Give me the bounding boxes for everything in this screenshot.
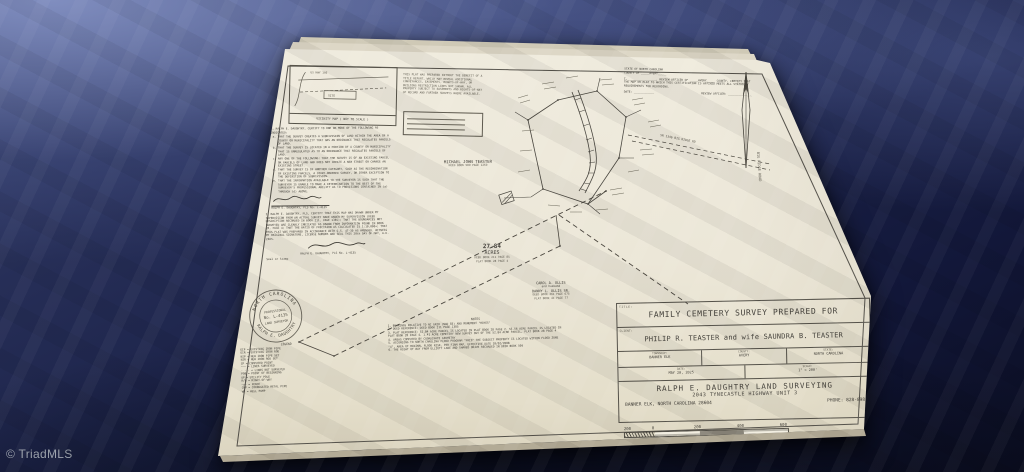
state-cell: STATE: NORTH CAROLINA — [787, 347, 871, 364]
firm-phone: PHONE: 828-898 — [827, 398, 865, 404]
legend: LEGEND EIP = EXISTING IRON PIPE EIR = EX… — [240, 341, 334, 394]
title-tag: TITLE: — [619, 305, 633, 309]
owner-label-ollis: CAROL A. OLLIS and husband DANNY L. OLLI… — [503, 280, 599, 301]
certification-body: I, RALPH E. DAUGHTRY, PLS, CERTIFY THAT … — [266, 211, 390, 241]
scale-tick: 0 — [652, 425, 655, 430]
township-cell: TOWNSHIP: BANNER ELK — [618, 350, 703, 367]
vicinity-roads: SITE US HWY 19E — [290, 66, 395, 114]
survey-plat-document: SR 1346 BIG RIDGE RD BIG RIDGE ROAD SITE — [0, 0, 1024, 472]
scale-tick: 200 — [694, 424, 701, 429]
date-cell: DATE: MAY 20, 2025 — [618, 365, 745, 381]
vicinity-map: SITE US HWY 19E VICINITY MAP ( NOT TO SC… — [288, 65, 397, 126]
scale-tick: 400 — [737, 423, 744, 428]
blank-line — [407, 124, 465, 130]
disclaimer-note: THIS PLAT WAS PREPARED WITHOUT THE BENEF… — [403, 73, 487, 96]
survey-title: FAMILY CEMETERY SURVEY PREPARED FOR — [648, 306, 838, 319]
review-officer-block: STATE OF NORTH CAROLINA COUNTY OF _____A… — [624, 68, 753, 97]
photo-background: SR 1346 BIG RIDGE RD BIG RIDGE ROAD SITE — [0, 0, 1024, 472]
scale-tick: 600 — [780, 422, 787, 427]
vicinity-map-label: VICINITY MAP ( NOT TO SCALE ) — [289, 113, 395, 125]
road-label-vertical: BIG RIDGE ROAD — [756, 152, 762, 182]
client-tag: CLIENT: — [620, 329, 633, 333]
surveyor-signature — [271, 194, 323, 204]
firm-city: BANNER ELK, NORTH CAROLINA 28604 — [625, 401, 712, 408]
scale-bar-segment — [655, 431, 700, 436]
vicinity-site-label: SITE — [328, 94, 336, 98]
review-body: I, ________________, REVIEW OFFICER OF _… — [624, 77, 752, 90]
survey-drawing-svg: SR 1346 BIG RIDGE RD BIG RIDGE ROAD — [0, 0, 1024, 472]
acreage-label: 27.84 ACRES DEED BOOK 211 PAGE 85 PLAT B… — [452, 242, 532, 263]
certification-item: THAT THE INFORMATION AVAILABLE TO THE SU… — [278, 178, 391, 193]
certification-signature: RALPH E. DAUGHTRY, PLS No. L-4135 — [300, 250, 390, 255]
scale-tick: 200 — [624, 426, 631, 431]
state-value: NORTH CAROLINA — [787, 351, 870, 357]
firm-row: RALPH E. DAUGHTRY LAND SURVEYING 2043 TY… — [619, 377, 872, 426]
township-value: BANNER ELK — [618, 355, 701, 361]
triadmls-watermark: © TriadMLS — [6, 447, 73, 461]
title-block: TITLE: FAMILY CEMETERY SURVEY PREPARED F… — [616, 298, 872, 423]
plat-sheet: SR 1346 BIG RIDGE RD BIG RIDGE ROAD SITE — [0, 0, 1024, 472]
scale-cell: SCALE: 1" = 200' — [745, 363, 871, 379]
client-name: PHILIP R. TEASTER and wife SAUNDRA B. TE… — [644, 331, 843, 343]
surveyor-info-box — [403, 111, 483, 137]
surveyor-signature — [306, 239, 366, 250]
certification-statement: I, RALPH E. DAUGHTRY, PLS, CERTIFY THAT … — [266, 211, 391, 262]
owner-label-michael-teaster: MICHAEL JOHN TEASTER DEED BOOK 509 PAGE … — [419, 159, 517, 168]
county-value: AVERY — [702, 353, 785, 359]
county-cell: COUNTY: AVERY — [702, 348, 787, 365]
certification-list: I, RALPH E. DAUGHTRY, CERTIFY TO ONE OR … — [271, 126, 392, 210]
notes-block: NOTES 1. BEARINGS RELATIVE TO NC GRID (N… — [388, 315, 565, 352]
review-date-line: DATE: ____________ — [624, 91, 654, 95]
scale-bar-segment — [625, 432, 655, 437]
vicinity-highway-label: US HWY 19E — [310, 70, 327, 74]
